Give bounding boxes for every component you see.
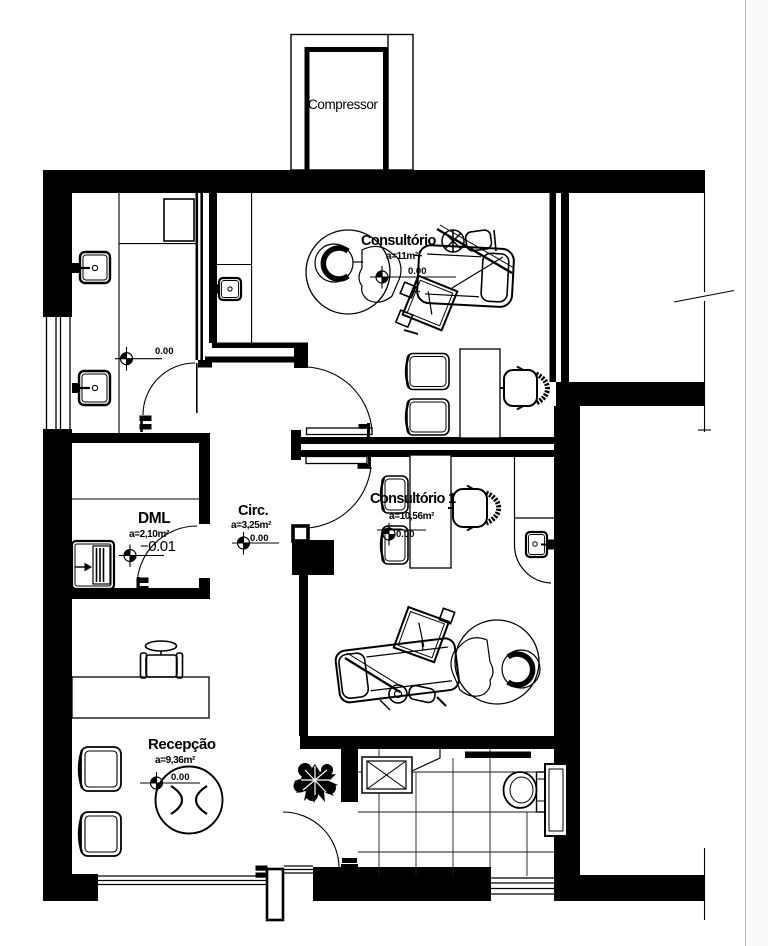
svg-text:0.00: 0.00 [250,533,269,544]
svg-text:Circ.: Circ. [238,503,269,519]
svg-text:a=9,36m²: a=9,36m² [155,755,196,766]
svg-text:0.00: 0.00 [408,266,427,277]
svg-text:−0.01: −0.01 [140,538,176,555]
svg-text:0.00: 0.00 [396,529,415,540]
svg-text:DML: DML [138,510,170,527]
svg-text:0.00: 0.00 [155,346,174,357]
svg-text:a=3,25m²: a=3,25m² [231,520,272,531]
svg-text:Consultório 1: Consultório 1 [370,491,456,507]
svg-text:Compressor: Compressor [308,97,378,112]
svg-text:Consultório: Consultório [361,233,436,249]
svg-text:a=10,56m²: a=10,56m² [389,511,435,522]
svg-text:a=11m²: a=11m² [386,251,419,262]
svg-text:0.00: 0.00 [171,772,190,783]
svg-text:Recepção: Recepção [148,736,216,753]
